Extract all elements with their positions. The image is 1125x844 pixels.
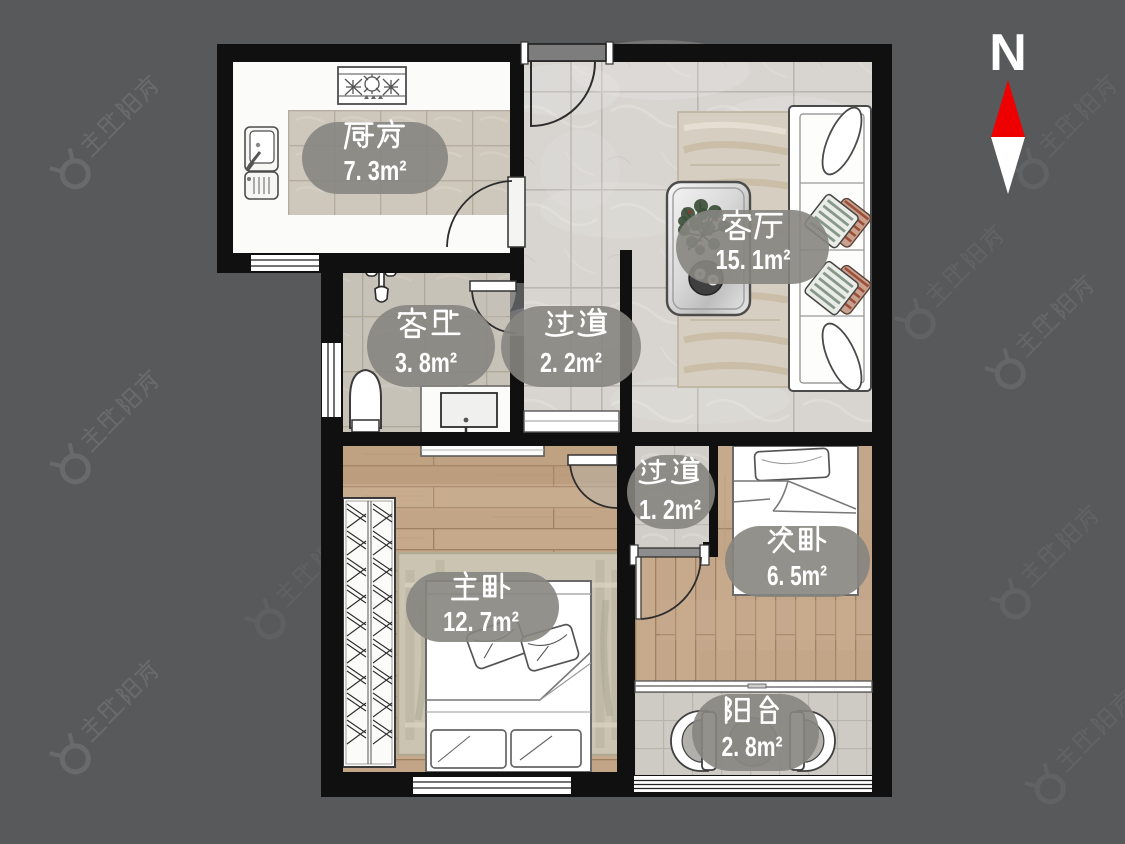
svg-text:2. 2m²: 2. 2m² — [540, 347, 602, 378]
svg-text:12. 7m²: 12. 7m² — [443, 606, 519, 637]
svg-text:1. 2m²: 1. 2m² — [639, 494, 701, 525]
svg-text:6. 5m²: 6. 5m² — [767, 560, 827, 591]
svg-text:3. 8m²: 3. 8m² — [395, 347, 457, 378]
svg-text:15. 1m²: 15. 1m² — [716, 244, 791, 275]
svg-text:N: N — [989, 24, 1027, 82]
svg-text:7. 3m²: 7. 3m² — [344, 155, 407, 186]
svg-text:2. 8m²: 2. 8m² — [722, 731, 783, 762]
